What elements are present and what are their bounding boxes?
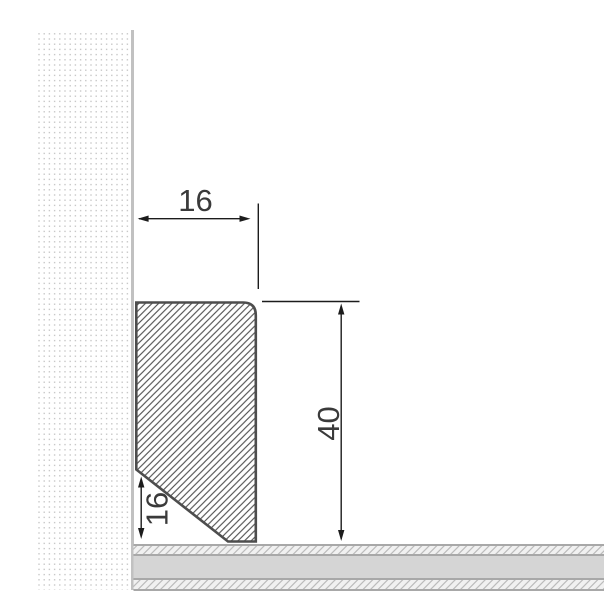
drawing-canvas: 16 40 16 <box>0 0 604 604</box>
floor-upper-hatch-layer <box>134 546 604 554</box>
arrowhead-down-icon <box>138 528 144 539</box>
dimension-top-width: 16 <box>138 183 259 289</box>
arrowhead-down-icon <box>338 530 344 541</box>
arrowhead-right-icon <box>240 216 251 222</box>
dimension-label-top-width: 16 <box>178 183 212 218</box>
dimension-height: 40 <box>262 302 360 542</box>
dimension-label-chamfer-height: 16 <box>140 492 175 526</box>
floor-lower-hatch-layer <box>134 580 604 589</box>
arrowhead-left-icon <box>138 216 149 222</box>
floor-divider-line-lower <box>134 578 604 580</box>
wall-edge-line <box>131 30 134 590</box>
floor-core-layer <box>134 556 604 578</box>
wall-texture <box>37 30 131 590</box>
floor-section <box>134 544 604 591</box>
arrowhead-up-icon <box>338 304 344 315</box>
floor-bottom-line <box>134 589 604 591</box>
wall-section <box>37 30 134 590</box>
arrowhead-up-icon <box>138 477 144 488</box>
floor-divider-line-upper <box>134 554 604 556</box>
dimension-label-height: 40 <box>311 406 346 440</box>
floor-top-line <box>134 544 604 546</box>
technical-drawing: 16 40 16 <box>0 0 604 604</box>
